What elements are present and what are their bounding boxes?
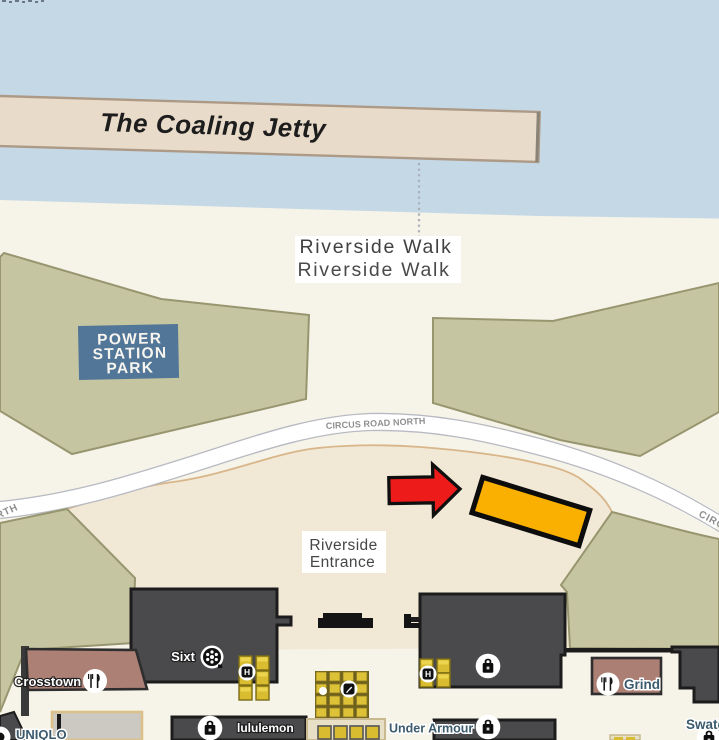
svg-text:Entrance: Entrance	[310, 554, 375, 571]
svg-text:Riverside Walk: Riverside Walk	[297, 259, 450, 281]
svg-text:H: H	[244, 667, 250, 677]
svg-text:Swatc: Swatc	[686, 717, 719, 732]
svg-text:Sixt: Sixt	[171, 649, 196, 664]
svg-text:Crosstown: Crosstown	[14, 674, 81, 689]
svg-text:Grind: Grind	[624, 677, 660, 692]
svg-text:UNIQLO: UNIQLO	[16, 727, 67, 740]
svg-text:Riverside Walk: Riverside Walk	[299, 236, 452, 258]
svg-text:Under Armour: Under Armour	[389, 722, 473, 736]
svg-text:Riverside: Riverside	[309, 537, 377, 554]
svg-text:PARK: PARK	[106, 359, 154, 377]
svg-text:H: H	[425, 669, 431, 679]
svg-text:lululemon: lululemon	[237, 721, 294, 735]
